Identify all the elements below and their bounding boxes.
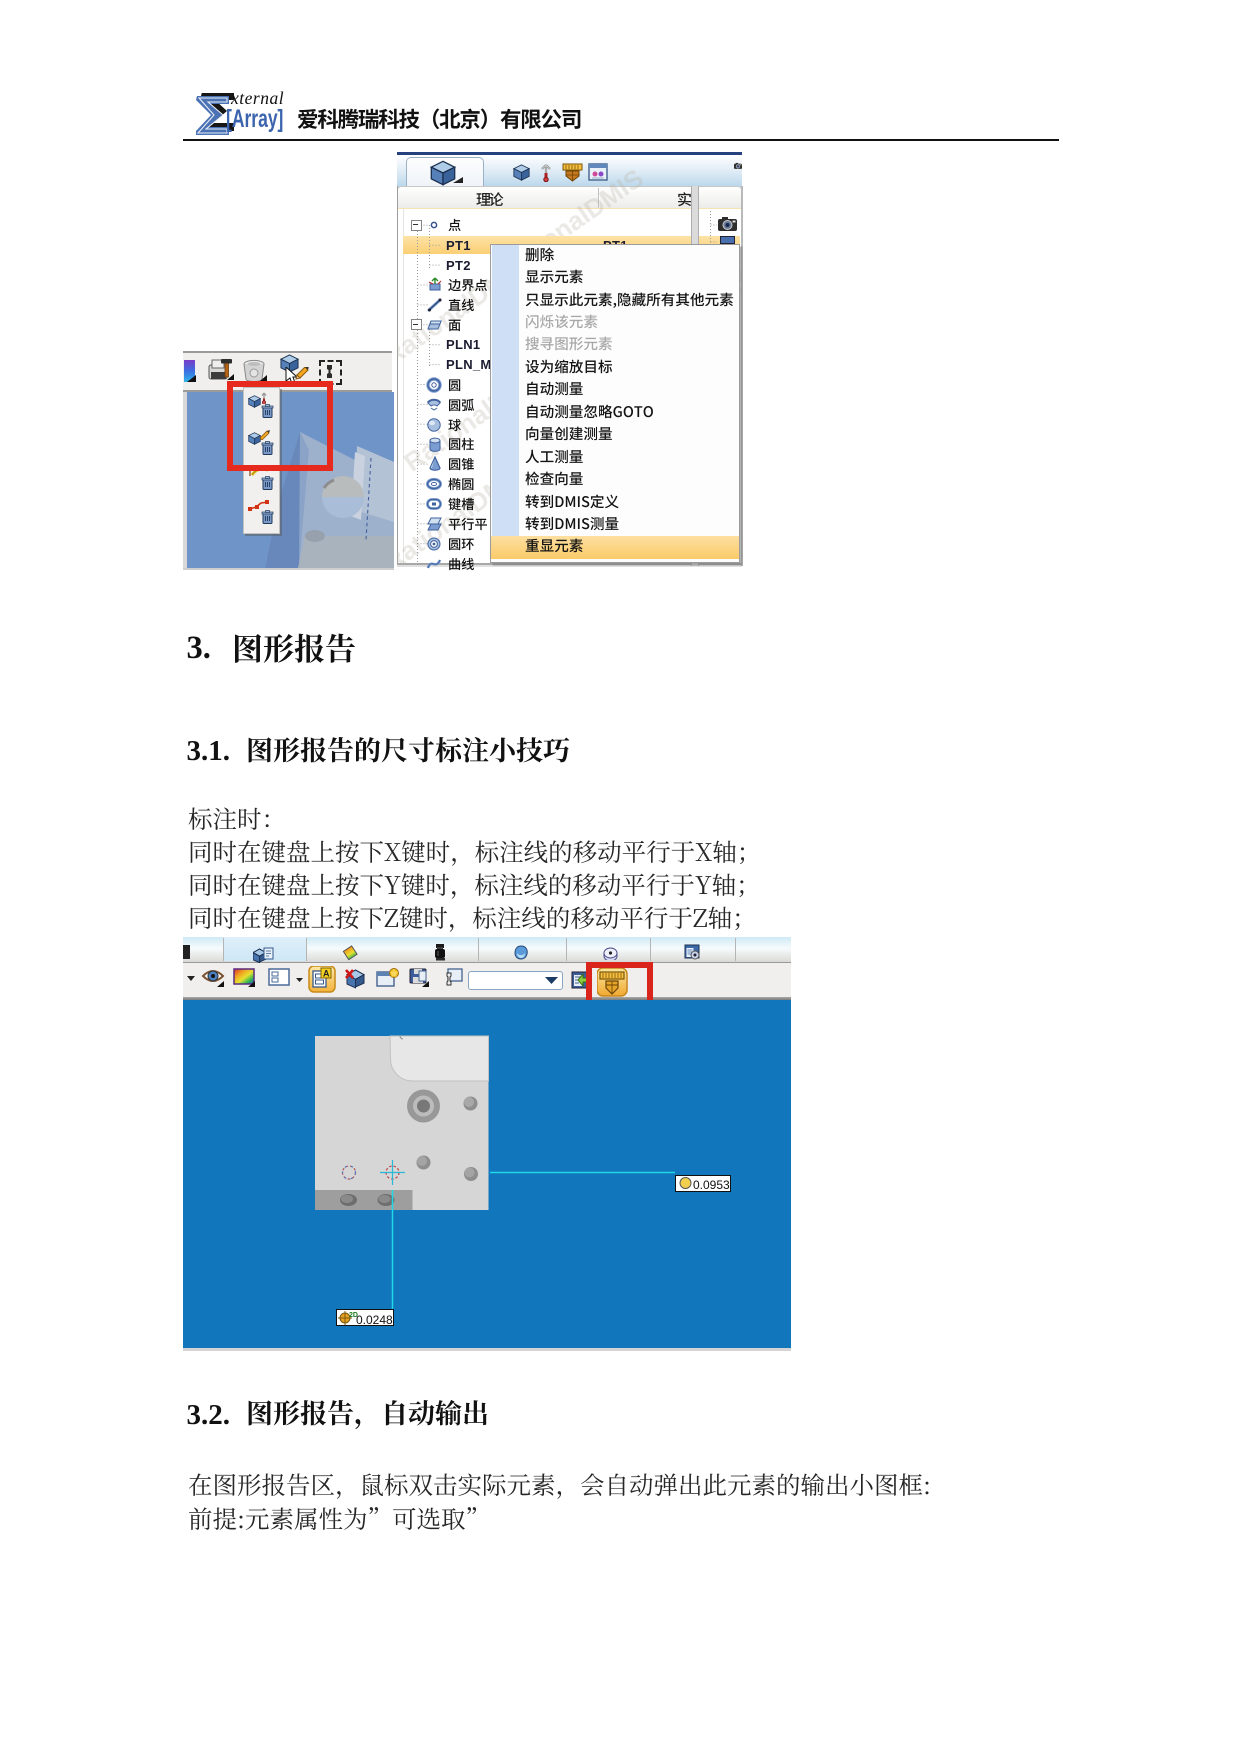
svg-text:A: A: [323, 969, 330, 979]
